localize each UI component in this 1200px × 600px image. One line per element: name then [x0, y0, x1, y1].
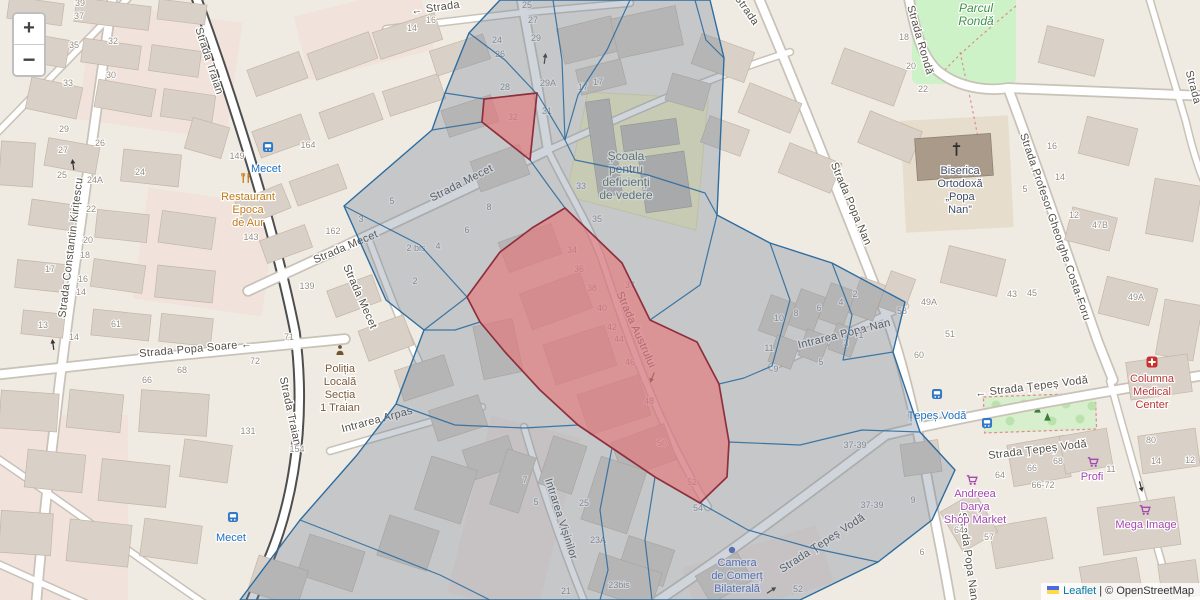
building — [0, 390, 59, 432]
building — [139, 390, 210, 437]
police-icon — [336, 345, 343, 355]
house-number: 22 — [86, 204, 96, 214]
hospital-icon — [1147, 357, 1158, 368]
building — [289, 164, 347, 206]
house-number: 47B — [1092, 220, 1108, 230]
transit-stop-label: Mecet — [216, 532, 246, 544]
building — [1078, 116, 1138, 165]
building — [120, 149, 181, 187]
house-number: 64 — [995, 470, 1005, 480]
bus-icon — [982, 418, 992, 428]
house-number: 30 — [106, 70, 116, 80]
house-number: 14 — [76, 287, 86, 297]
building — [25, 77, 83, 119]
transit-stop-label: Mecet — [251, 163, 281, 175]
house-number: 18 — [899, 32, 909, 42]
building — [95, 209, 150, 242]
house-number: 51 — [945, 329, 955, 339]
leaflet-link[interactable]: Leaflet — [1063, 585, 1096, 597]
house-number: 22 — [918, 84, 928, 94]
house-number: 5 — [1022, 184, 1027, 194]
building — [66, 519, 132, 567]
building — [1038, 26, 1103, 77]
building — [74, 0, 151, 30]
poi-label: Mega Image — [1115, 519, 1176, 531]
house-number: 29 — [59, 124, 69, 134]
house-number: 37 — [74, 11, 84, 21]
house-number: 16 — [426, 15, 436, 25]
house-number: 71 — [284, 332, 294, 342]
house-number: 68 — [1053, 456, 1063, 466]
building — [1146, 178, 1200, 241]
house-number: 14 — [1151, 456, 1161, 466]
map-svg: Strada TraianStrada TraianStrada Constan… — [0, 0, 1200, 600]
attribution-separator: | — [1096, 585, 1105, 597]
building — [247, 51, 308, 96]
cutlery-icon — [241, 173, 250, 183]
house-number: 13 — [38, 320, 48, 330]
house-number: 72 — [250, 356, 260, 366]
building — [24, 449, 86, 493]
house-number: 49A — [1128, 292, 1144, 302]
house-number: 80 — [1146, 435, 1156, 445]
house-number: 14 — [407, 23, 417, 33]
house-number: 12 — [1069, 210, 1079, 220]
house-number: 39 — [75, 0, 85, 8]
building — [940, 246, 1005, 297]
building — [382, 74, 445, 117]
building — [0, 141, 35, 187]
house-number: 20 — [83, 235, 93, 245]
house-number: 154 — [289, 444, 304, 454]
house-number: 32 — [108, 36, 118, 46]
house-number: 16 — [1047, 141, 1057, 151]
poi-label: ParculRondă — [958, 1, 994, 28]
house-number: 164 — [300, 140, 315, 150]
building — [15, 260, 66, 293]
house-number: 61 — [111, 319, 121, 329]
building — [154, 265, 215, 303]
building — [319, 93, 383, 139]
building — [180, 439, 233, 483]
poi-label: PolițiaLocalăSecția1 Traian — [320, 363, 360, 414]
house-number: 17 — [45, 264, 55, 274]
zoom-in-button[interactable]: + — [14, 14, 44, 44]
house-number: 57 — [984, 532, 994, 542]
house-number: 14 — [69, 332, 79, 342]
house-number: 66-72 — [1031, 480, 1054, 490]
building — [831, 48, 906, 106]
house-number: 6 — [919, 547, 924, 557]
poi-label: ColumnaMedicalCenter — [1130, 373, 1175, 411]
ukraine-flag-icon — [1047, 586, 1059, 594]
building — [140, 518, 203, 564]
zoom-out-button[interactable]: − — [14, 44, 44, 75]
building — [858, 111, 923, 164]
osm-link[interactable]: © OpenStreetMap — [1105, 585, 1194, 597]
house-number: 162 — [325, 226, 340, 236]
house-number: 35 — [69, 40, 79, 50]
house-number: 49A — [921, 297, 937, 307]
house-number: 27 — [58, 145, 68, 155]
bus-icon — [228, 512, 238, 522]
house-number: 68 — [177, 365, 187, 375]
building — [0, 510, 53, 556]
house-number: 64 — [954, 525, 964, 535]
house-number: 24 — [135, 167, 145, 177]
bus-icon — [932, 389, 942, 399]
house-number: 12 — [1185, 455, 1195, 465]
attribution-bar: Leaflet | © OpenStreetMap — [1041, 583, 1200, 600]
building — [66, 389, 124, 432]
zoom-control: + − — [12, 12, 46, 77]
poi-label: Profi — [1081, 471, 1104, 483]
house-number: 131 — [240, 426, 255, 436]
one-way-arrow-icon — [50, 339, 56, 351]
house-number: 66 — [1027, 463, 1037, 473]
house-number: 66 — [142, 375, 152, 385]
house-number: 26 — [95, 138, 105, 148]
house-number: 60 — [914, 350, 924, 360]
house-number: 25 — [57, 170, 67, 180]
house-number: 20 — [906, 61, 916, 71]
house-number: 11 — [1106, 464, 1115, 474]
building — [1155, 299, 1200, 361]
building — [98, 459, 170, 508]
house-number: 139 — [299, 281, 314, 291]
house-number: 33 — [63, 78, 73, 88]
house-number: 16 — [78, 274, 88, 284]
building — [252, 114, 310, 158]
building — [90, 259, 145, 294]
house-number: 45 — [1027, 288, 1037, 298]
bus-icon — [263, 142, 273, 152]
cart-icon — [967, 476, 977, 485]
map-container[interactable]: Strada TraianStrada TraianStrada Constan… — [0, 0, 1200, 600]
house-number: 24A — [87, 175, 103, 185]
house-number: 43 — [1007, 289, 1017, 299]
house-number: 143 — [243, 232, 258, 242]
house-number: 149 — [229, 151, 244, 161]
house-number: 18 — [80, 250, 90, 260]
house-number: 14 — [1055, 172, 1065, 182]
